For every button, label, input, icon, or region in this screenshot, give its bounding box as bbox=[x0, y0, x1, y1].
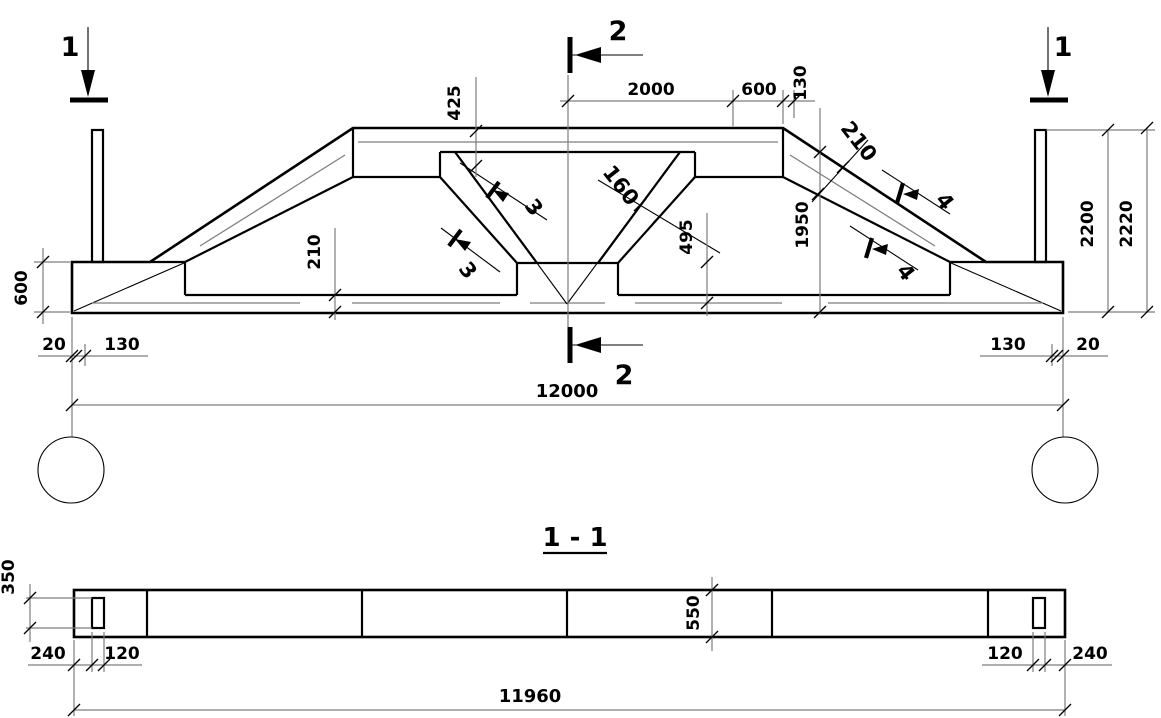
section-flag-3-lower: 3 bbox=[441, 228, 500, 284]
arrow-icon bbox=[903, 189, 919, 200]
dim-350: 350 bbox=[0, 559, 92, 642]
arrow-left-icon bbox=[575, 47, 601, 63]
dim-210-chord: 210 bbox=[812, 117, 882, 202]
dim-2200: 2200 bbox=[1078, 200, 1098, 247]
dim-120-left: 120 bbox=[104, 644, 140, 664]
section-label-4: 4 bbox=[931, 188, 959, 214]
dim-495: 495 bbox=[677, 213, 713, 316]
truss-thin-lines bbox=[74, 75, 1061, 327]
svg-text:210: 210 bbox=[836, 117, 882, 166]
dim-240-left: 240 bbox=[30, 644, 66, 664]
arrow-icon bbox=[493, 190, 509, 202]
drawing-svg: 1 1 2 2 3 3 4 bbox=[0, 0, 1161, 718]
dim-1950: 1950 bbox=[793, 108, 826, 318]
section-1-1-view: 1 - 1 350 550 bbox=[0, 523, 1112, 716]
lifting-loop-right bbox=[1035, 130, 1046, 262]
dim-130-right: 130 bbox=[990, 335, 1026, 355]
engineering-drawing-truss: 1 1 2 2 3 3 4 bbox=[0, 0, 1161, 718]
section-marker-2-top: 2 bbox=[570, 16, 643, 73]
grid-bubble-right bbox=[1032, 437, 1098, 503]
dim-130-left: 130 bbox=[104, 335, 140, 355]
plan-bar-outline bbox=[74, 590, 1065, 637]
dim-2000: 2000 bbox=[627, 80, 674, 100]
dim-12000: 12000 bbox=[66, 381, 1069, 411]
svg-text:11960: 11960 bbox=[499, 686, 562, 707]
grid-bubble-left bbox=[38, 437, 104, 503]
loop-hole-left bbox=[92, 598, 104, 628]
dim-120-right: 120 bbox=[987, 644, 1023, 664]
svg-text:550: 550 bbox=[684, 595, 704, 631]
arrow-down-icon bbox=[1041, 70, 1055, 97]
section-label-1: 1 bbox=[1054, 32, 1073, 63]
dim-top-chain: 2000 600 130 bbox=[560, 65, 815, 126]
dim-550: 550 bbox=[684, 577, 718, 651]
svg-text:495: 495 bbox=[677, 219, 697, 255]
dim-20-right: 20 bbox=[1076, 335, 1100, 355]
dim-600-top: 600 bbox=[741, 80, 777, 100]
section-title: 1 - 1 bbox=[542, 523, 607, 553]
lifting-loop-left bbox=[92, 130, 103, 262]
dim-20-left: 20 bbox=[42, 335, 66, 355]
arrow-down-icon bbox=[81, 70, 95, 97]
svg-text:350: 350 bbox=[0, 559, 19, 595]
dim-2220: 2220 bbox=[1117, 200, 1137, 247]
section-marker-1-right: 1 bbox=[1030, 27, 1072, 100]
section-label-4: 4 bbox=[892, 259, 920, 285]
svg-text:210: 210 bbox=[305, 234, 325, 270]
svg-text:425: 425 bbox=[445, 85, 465, 121]
svg-text:1950: 1950 bbox=[793, 201, 813, 248]
section-label-2: 2 bbox=[609, 16, 628, 47]
dim-130-top: 130 bbox=[791, 65, 811, 101]
svg-text:600: 600 bbox=[12, 270, 32, 306]
dim-240-right: 240 bbox=[1072, 644, 1108, 664]
section-label-1: 1 bbox=[61, 32, 80, 63]
section-label-2: 2 bbox=[615, 360, 634, 391]
dim-210-bottom: 210 bbox=[305, 228, 341, 320]
dim-20-130-left: 20 130 bbox=[38, 317, 148, 437]
dim-600-left: 600 bbox=[12, 248, 70, 324]
section-label-3: 3 bbox=[454, 257, 482, 283]
dim-130-20-right: 130 20 bbox=[980, 317, 1108, 437]
section-label-3: 3 bbox=[520, 194, 548, 220]
section-flag-4-upper: 4 bbox=[882, 170, 959, 215]
section-marker-1-left: 1 bbox=[61, 27, 108, 100]
loop-hole-right bbox=[1033, 598, 1045, 628]
section-flag-3-upper: 3 bbox=[460, 163, 548, 221]
dim-11960: 11960 bbox=[68, 672, 1071, 716]
truss-elevation bbox=[72, 75, 1063, 327]
svg-text:12000: 12000 bbox=[536, 381, 599, 402]
arrow-left-icon bbox=[575, 337, 601, 353]
section-flag-4-lower: 4 bbox=[850, 226, 920, 286]
